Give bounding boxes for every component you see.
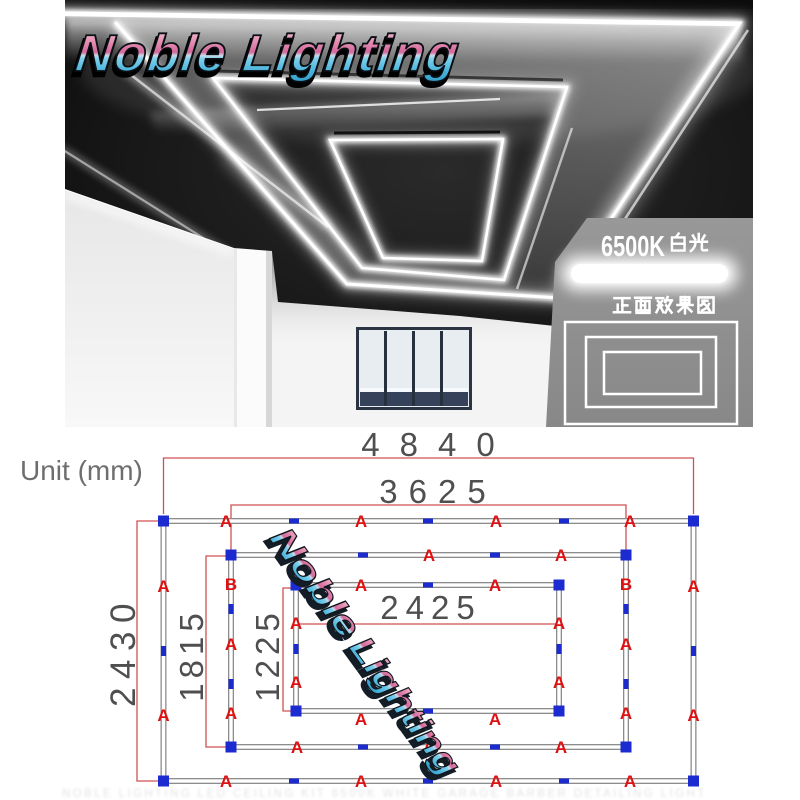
svg-text:A: A (225, 635, 237, 654)
svg-text:A: A (157, 706, 169, 725)
svg-text:A: A (423, 546, 435, 565)
svg-text:A: A (624, 512, 636, 531)
svg-text:A: A (355, 512, 367, 531)
svg-text:1815: 1815 (173, 608, 210, 701)
svg-text:A: A (290, 673, 302, 692)
svg-text:A: A (555, 546, 567, 565)
svg-text:B: B (225, 575, 237, 594)
svg-text:A: A (553, 673, 565, 692)
svg-text:A: A (553, 614, 565, 633)
svg-text:A: A (489, 576, 501, 595)
svg-text:A: A (687, 706, 699, 725)
svg-text:NOBLE LIGHTING LED CEILING KIT: NOBLE LIGHTING LED CEILING KIT 6500K WHI… (62, 788, 707, 800)
svg-text:A: A (555, 738, 567, 757)
svg-text:B: B (620, 575, 632, 594)
svg-text:A: A (355, 710, 367, 729)
svg-text:A: A (291, 738, 303, 757)
svg-text:A: A (489, 710, 501, 729)
svg-text:A: A (620, 635, 632, 654)
svg-text:A: A (220, 512, 232, 531)
svg-text:A: A (355, 576, 367, 595)
svg-text:1225: 1225 (249, 608, 286, 701)
svg-text:A: A (490, 512, 502, 531)
svg-text:A: A (157, 577, 169, 596)
svg-text:A: A (225, 704, 237, 723)
svg-text:A: A (687, 577, 699, 596)
svg-text:Unit (mm): Unit (mm) (20, 455, 143, 486)
svg-text:A: A (290, 614, 302, 633)
svg-text:2425: 2425 (380, 589, 481, 626)
svg-text:A: A (620, 704, 632, 723)
svg-text:Noble Lighting: Noble Lighting (73, 25, 462, 83)
